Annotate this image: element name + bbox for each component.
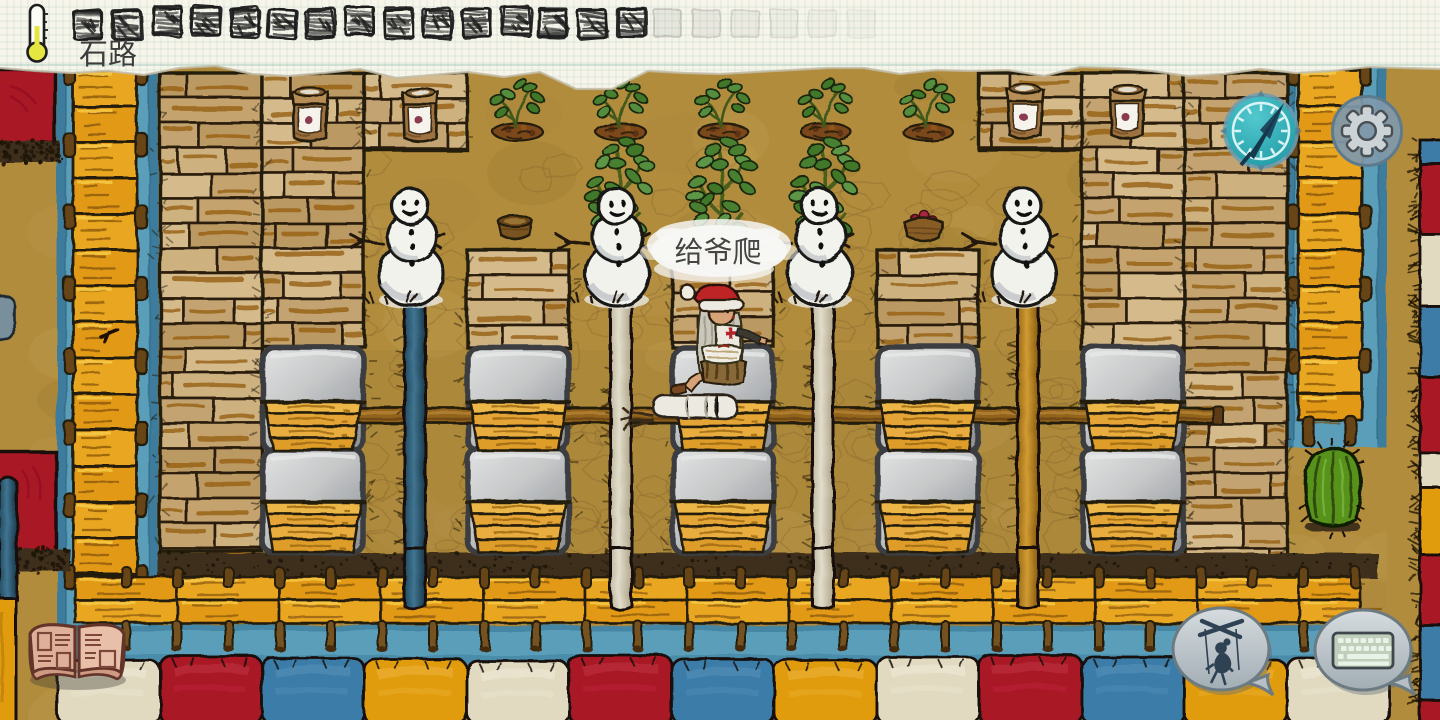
svg-text:石路: 石路 (79, 38, 137, 71)
